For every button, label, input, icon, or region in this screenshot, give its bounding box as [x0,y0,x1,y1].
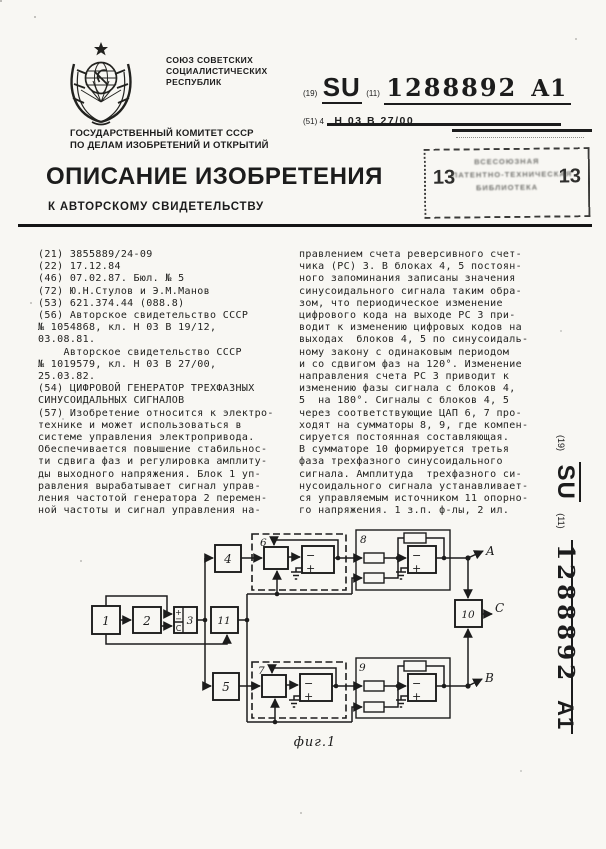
page-title: ОПИСАНИЕ ИЗОБРЕТЕНИЯ [46,163,383,191]
header-rule-right [452,129,592,132]
country-code-label: (19) [303,89,317,98]
figure-caption: фиг.1 [294,735,337,750]
side-country-code: SU [552,462,581,501]
opamp-8-minus: − [412,549,421,562]
ground-symbols [289,572,406,707]
patent-document-page: СОЮЗ СОВЕТСКИХ СОЦИАЛИСТИЧЕСКИХ РЕСПУБЛИ… [0,0,606,849]
junction-dots [203,555,471,724]
dac-block-6-container [252,534,346,590]
doc-number-value: 1288892 [386,73,517,102]
opamp-7-plus: + [304,690,313,703]
side-doc-number-label: (11) [556,513,566,528]
opamp-9-plus: + [412,690,421,703]
block-2-label: 2 [142,614,151,628]
ussr-coat-of-arms-icon [60,40,142,126]
scan-noise [0,0,2,2]
diagram-wires [106,538,492,722]
counter-down-input-label: − [175,615,182,624]
block-8-label: 8 [360,534,367,546]
opamp-8 [408,546,436,573]
page-subtitle: К АВТОРСКОМУ СВИДЕТЕЛЬСТВУ [48,201,264,213]
opamp-6-minus: − [306,549,315,562]
summator-block-8-container [356,530,450,590]
opamp-9 [408,674,436,701]
bibliography-and-abstract-left-column: (21) 3855889/24-09 (22) 17.12.84 (46) 07… [38,249,296,517]
side-publication-label: (19) SU (11) 1288892A1 [545,428,581,728]
ipc-label: (51) 4 [303,117,324,126]
dac-7-core [262,675,286,697]
dac-block-7-container [252,662,346,718]
header-dotted-line [456,137,584,138]
output-c-label: C [495,601,504,615]
resistor-8-input-2 [364,573,384,583]
doc-number-label: (11) [366,89,380,98]
memory-block-4 [215,545,241,572]
block-5-label: 5 [222,680,230,694]
stamp-text: ВСЕСОЮЗНАЯ ПАТЕНТНО-ТЕХНИЧЕСКАЯ БИБЛИОТЕ… [452,154,562,194]
resistor-9-input-1 [364,681,384,691]
counter-up-input-label: + [175,608,182,617]
output-a-label: A [485,544,495,558]
generator-block-2 [133,607,161,633]
output-b-label: B [484,671,494,685]
publication-number-row: (19) SU (11) 1288892A1 [303,72,571,103]
library-stamp: 13 13 ВСЕСОЮЗНАЯ ПАТЕНТНО-ТЕХНИЧЕСКАЯ БИ… [424,147,591,219]
country-code: SU [322,72,362,104]
summator-block-10 [455,600,482,627]
ipc-underline [327,123,561,126]
opamp-6 [302,546,334,573]
opamp-8-plus: + [412,562,421,575]
side-country-code-label: (19) [556,435,566,451]
block-11-label: 11 [217,615,230,627]
reference-source-block-11 [211,607,238,633]
control-block-1 [92,606,120,634]
counter-block-3 [174,607,197,633]
block-1-label: 1 [102,614,110,628]
summator-block-9-container [356,658,450,718]
resistor-9-feedback [404,661,426,671]
ipc-row: (51) 4 Н 03 В 27/00 [303,111,414,129]
opamp-7-minus: − [304,677,313,690]
resistor-9-input-2 [364,702,384,712]
counter-block-3-dividers [174,607,183,633]
committee-name: ГОСУДАРСТВЕННЫЙ КОМИТЕТ СССР ПО ДЕЛАМ ИЗ… [70,128,269,152]
resistor-8-feedback [404,533,426,543]
block-9-label: 9 [359,662,366,674]
opamp-7 [300,674,332,701]
union-name: СОЮЗ СОВЕТСКИХ СОЦИАЛИСТИЧЕСКИХ РЕСПУБЛИ… [166,55,268,88]
block-7-label: 7 [258,665,265,677]
abstract-right-column: правлением счета реверсивного счет- чика… [299,249,581,517]
doc-number: 1288892A1 [384,73,571,105]
opamp-6-plus: + [306,562,315,575]
block-3-label: 3 [187,615,194,627]
opamp-9-minus: − [412,677,421,690]
side-doc-kind: A1 [553,700,578,730]
memory-block-5 [213,673,239,700]
block-10-label: 10 [461,609,475,621]
resistor-8-input-1 [364,553,384,563]
header-divider [18,224,592,227]
side-doc-number: 1288892A1 [554,540,573,734]
block-6-label: 6 [260,537,267,549]
side-doc-number-value: 1288892 [552,544,579,684]
block-4-label: 4 [223,552,232,566]
dac-6-core [264,547,288,569]
doc-kind: A1 [531,75,567,102]
counter-clock-input-label: C [176,624,182,633]
